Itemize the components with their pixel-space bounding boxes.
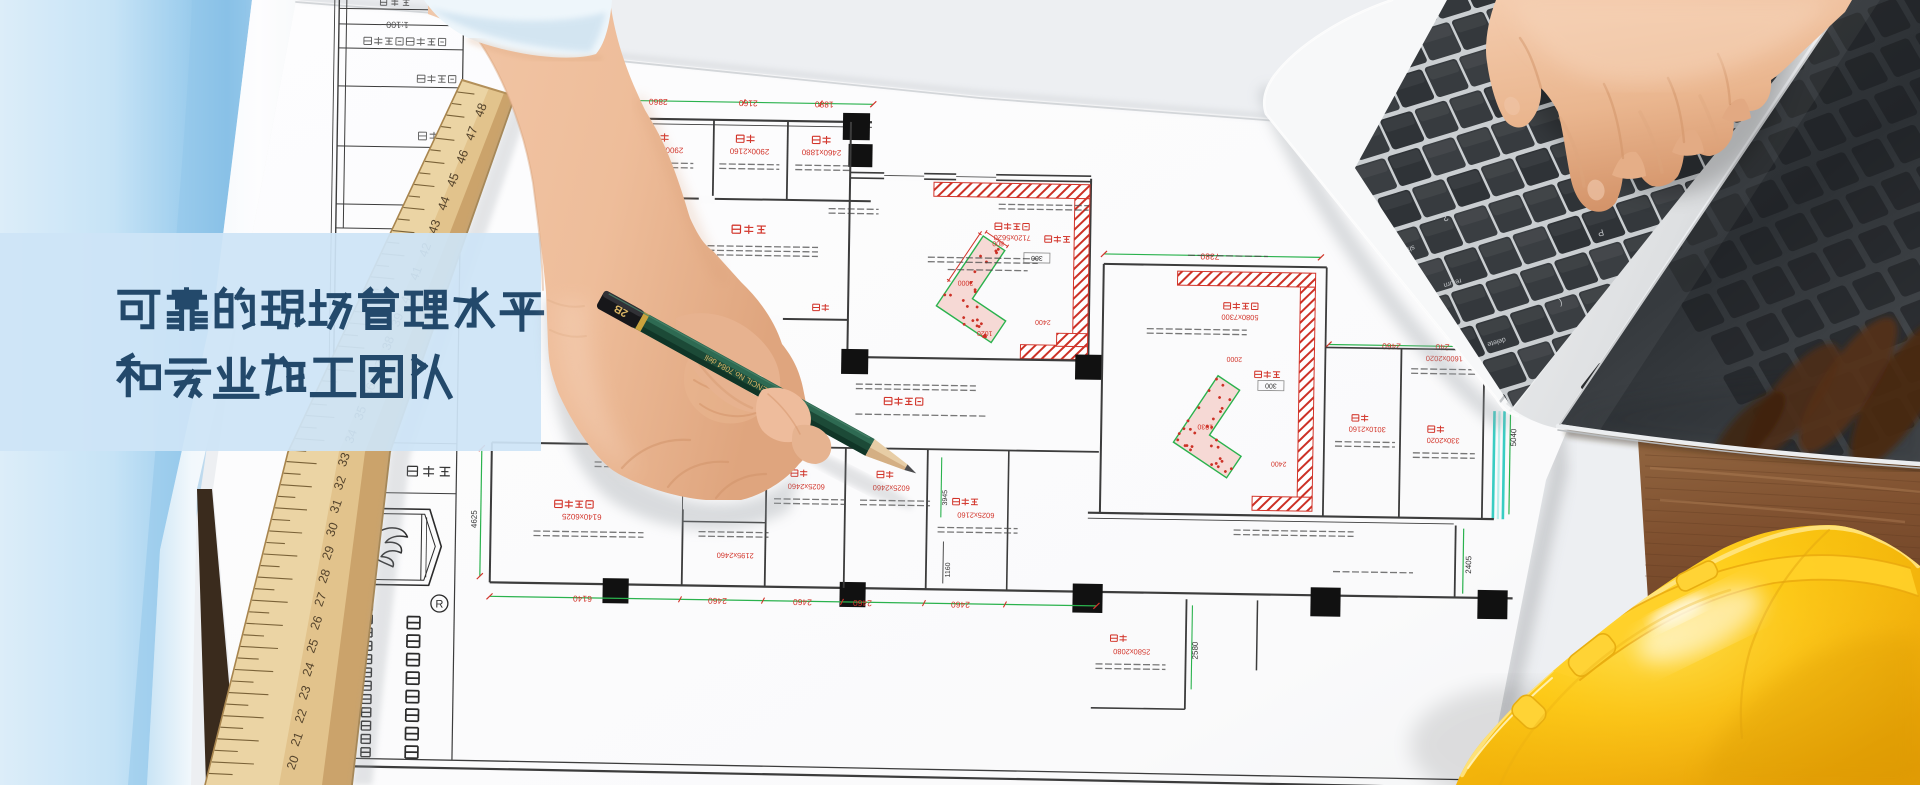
svg-text:2000: 2000 bbox=[958, 279, 974, 286]
svg-text:300: 300 bbox=[1031, 254, 1043, 261]
svg-text:5080x7300: 5080x7300 bbox=[1221, 313, 1258, 323]
svg-text:2160: 2160 bbox=[738, 98, 757, 108]
svg-text:2460: 2460 bbox=[853, 598, 872, 608]
svg-text:2580: 2580 bbox=[1191, 641, 1200, 659]
svg-text:6025x2160: 6025x2160 bbox=[957, 510, 994, 520]
svg-text:2860: 2860 bbox=[648, 97, 667, 107]
svg-text:2460: 2460 bbox=[1382, 341, 1401, 351]
svg-text:2195x2460: 2195x2460 bbox=[717, 551, 754, 561]
svg-text:2460: 2460 bbox=[708, 596, 727, 606]
svg-text:7120x5620: 7120x5620 bbox=[994, 233, 1031, 243]
svg-text:1020: 1020 bbox=[977, 329, 993, 336]
svg-text:5040: 5040 bbox=[1509, 428, 1518, 446]
svg-text:1030: 1030 bbox=[1197, 423, 1213, 430]
svg-text:6140x6025: 6140x6025 bbox=[561, 512, 601, 522]
svg-text:2580x2080: 2580x2080 bbox=[1113, 647, 1150, 657]
svg-text:3010x2160: 3010x2160 bbox=[1349, 425, 1386, 435]
svg-text:2900x2160: 2900x2160 bbox=[729, 146, 769, 156]
svg-text:2460: 2460 bbox=[951, 600, 970, 610]
svg-text:2000: 2000 bbox=[1226, 355, 1242, 362]
svg-text:7380: 7380 bbox=[1200, 251, 1219, 261]
svg-text:2460: 2460 bbox=[793, 597, 812, 607]
svg-text:2400: 2400 bbox=[1271, 460, 1287, 467]
svg-text:300: 300 bbox=[1265, 382, 1277, 389]
svg-text:330x2020: 330x2020 bbox=[1427, 436, 1460, 446]
svg-text:6140: 6140 bbox=[573, 594, 592, 604]
svg-text:4625: 4625 bbox=[470, 510, 479, 528]
svg-text:2405: 2405 bbox=[1464, 555, 1473, 573]
svg-text:1160: 1160 bbox=[945, 562, 952, 577]
svg-text:2400: 2400 bbox=[1035, 318, 1051, 325]
svg-text:R: R bbox=[435, 598, 443, 610]
svg-text:2460x1880: 2460x1880 bbox=[801, 148, 841, 158]
svg-text:1880: 1880 bbox=[814, 99, 833, 109]
svg-text:1:100: 1:100 bbox=[386, 20, 409, 30]
svg-text:3945: 3945 bbox=[942, 490, 949, 506]
